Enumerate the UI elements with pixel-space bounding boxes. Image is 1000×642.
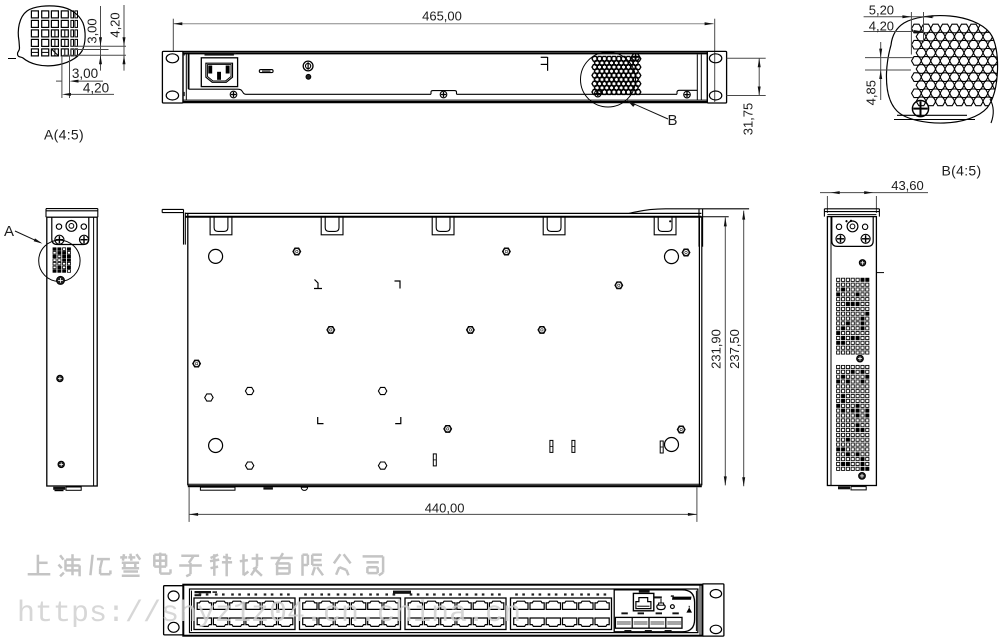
svg-text:465,00: 465,00 bbox=[422, 9, 462, 24]
svg-text:3,00: 3,00 bbox=[85, 18, 100, 43]
svg-text:43,60: 43,60 bbox=[891, 178, 924, 193]
svg-text:5,20: 5,20 bbox=[869, 3, 894, 18]
svg-text:B: B bbox=[667, 112, 677, 129]
svg-text:4,85: 4,85 bbox=[864, 80, 879, 105]
svg-text:4,20: 4,20 bbox=[108, 12, 123, 37]
svg-text:A: A bbox=[4, 223, 14, 240]
svg-text:https://shyz1z04.cn.china.cn: https://shyz1z04.cn.china.cn bbox=[17, 597, 521, 631]
svg-text:31,75: 31,75 bbox=[741, 103, 756, 136]
svg-text:440,00: 440,00 bbox=[425, 501, 465, 516]
svg-text:4,20: 4,20 bbox=[83, 81, 109, 96]
svg-text:B(4:5): B(4:5) bbox=[942, 163, 982, 179]
svg-text:231,90: 231,90 bbox=[709, 329, 724, 369]
svg-text:4,20: 4,20 bbox=[869, 19, 894, 34]
svg-text:A(4:5): A(4:5) bbox=[44, 127, 84, 143]
svg-text:3,00: 3,00 bbox=[72, 66, 98, 81]
svg-text:237,50: 237,50 bbox=[727, 329, 742, 369]
